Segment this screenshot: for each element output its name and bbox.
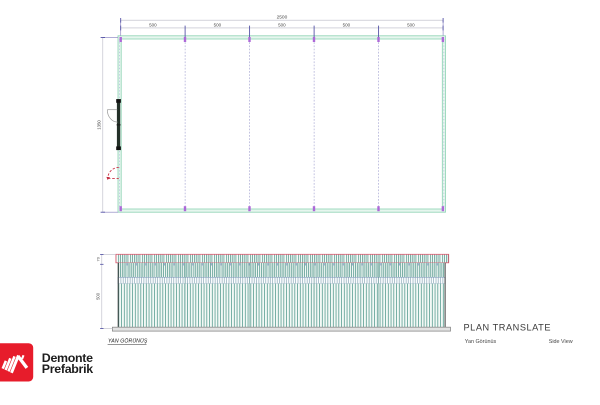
svg-text:YAN GÖRÜNÜŞ: YAN GÖRÜNÜŞ — [108, 338, 148, 345]
svg-text:500: 500 — [214, 22, 222, 27]
svg-text:Side View: Side View — [549, 339, 573, 345]
svg-text:500: 500 — [96, 292, 101, 300]
svg-text:PLAN TRANSLATE: PLAN TRANSLATE — [464, 323, 552, 333]
svg-text:2500: 2500 — [277, 15, 288, 21]
svg-text:1350: 1350 — [96, 120, 101, 130]
svg-text:500: 500 — [149, 22, 157, 27]
svg-text:Yan Görünüs: Yan Görünüs — [465, 339, 497, 345]
svg-text:500: 500 — [407, 22, 415, 27]
svg-text:70: 70 — [96, 256, 101, 261]
svg-text:500: 500 — [278, 22, 286, 27]
svg-text:500: 500 — [343, 22, 351, 27]
svg-text:Prefabrik: Prefabrik — [42, 362, 93, 376]
